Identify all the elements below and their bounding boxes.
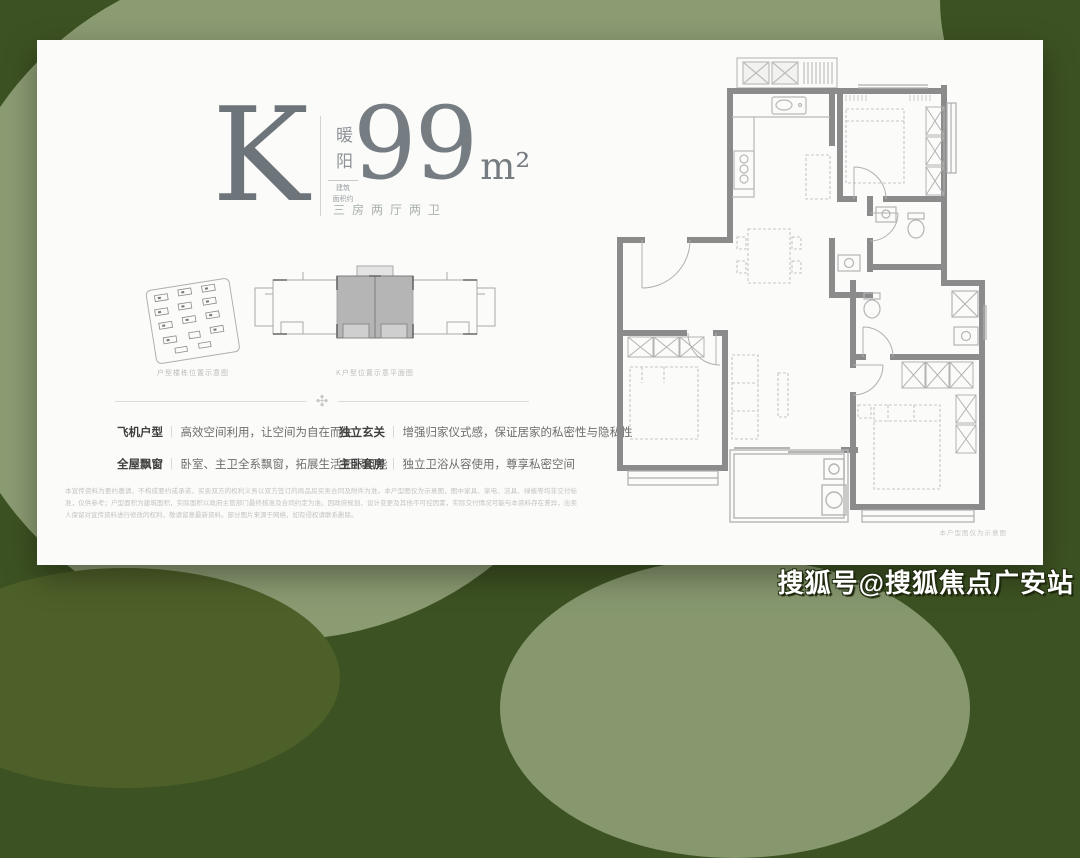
floorplan-card: K 暖阳 建筑 面积约 99 m² 三房两厅两卫 户型 [37,40,1043,565]
area-unit: m² [480,148,530,185]
decor-sage-band-top [400,0,1000,40]
area-value: 99 [353,96,476,191]
feature-item: 全屋飘窗｜卧室、主卫全系飘窗，拓展生活无限可能 [117,456,339,472]
floorplan-svg [608,55,998,535]
ornament-divider: ✣ [115,392,529,410]
decor-sage-leaf-bottom [500,558,970,858]
disclaimer-text: 本宣传资料为要约邀请，不构成要约或承诺，买卖双方的权利义务以双方签订的商品房买卖… [65,486,577,522]
series-name: 暖阳 [330,126,355,178]
floorplan-caption: 本户型图仅为示意图 [897,527,1007,537]
floor-plate-diagram [243,260,507,356]
layout-description: 三房两厅两卫 [333,201,447,218]
flower-ornament-icon: ✣ [306,394,339,409]
site-plan-diagram [143,278,243,366]
headline-divider [320,116,321,216]
site-plan-caption: 户型楼栋位置示意图 [133,368,253,378]
area-row: 99 m² [353,96,530,191]
feature-item: 飞机户型｜高效空间利用，让空间为自在而生 [117,424,339,440]
feature-list: 飞机户型｜高效空间利用，让空间为自在而生 独立玄关｜增强归家仪式感，保证居家的私… [117,424,567,472]
unit-type-letter: K [212,90,309,220]
feature-item: 独立玄关｜增强归家仪式感，保证居家的私密性与隐私性 [339,424,567,440]
feature-item: 主卧套房｜独立卫浴从容使用，尊享私密空间 [339,456,567,472]
floor-plate-caption: K户型位置示意平面图 [285,368,465,378]
watermark-text: 搜狐号@搜狐焦点广安站 [778,563,1074,600]
